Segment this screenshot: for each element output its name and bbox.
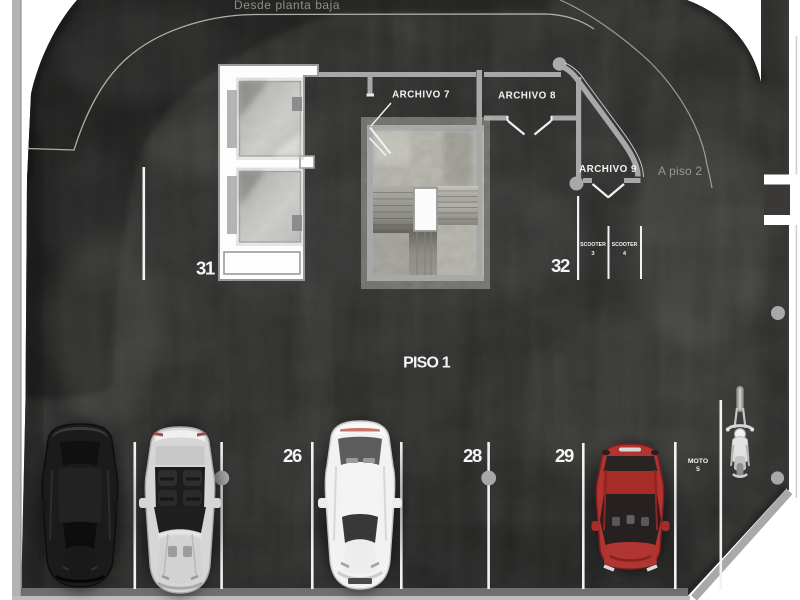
svg-text:SCOOTER: SCOOTER xyxy=(580,242,606,248)
svg-text:Desde planta baja: Desde planta baja xyxy=(234,0,340,12)
svg-text:SCOOTER: SCOOTER xyxy=(612,242,638,248)
svg-text:ARCHIVO 9: ARCHIVO 9 xyxy=(579,164,637,175)
svg-text:28: 28 xyxy=(463,445,482,466)
svg-text:MOTO: MOTO xyxy=(688,458,708,465)
svg-text:26: 26 xyxy=(283,445,302,466)
svg-text:5: 5 xyxy=(696,466,700,473)
svg-text:PISO 1: PISO 1 xyxy=(403,355,451,372)
svg-text:ARCHIVO 7: ARCHIVO 7 xyxy=(392,90,450,101)
svg-text:ARCHIVO 8: ARCHIVO 8 xyxy=(498,91,556,102)
svg-text:29: 29 xyxy=(555,445,574,466)
svg-text:32: 32 xyxy=(551,255,570,276)
svg-text:31: 31 xyxy=(196,258,215,279)
svg-text:A piso 2: A piso 2 xyxy=(658,164,702,178)
